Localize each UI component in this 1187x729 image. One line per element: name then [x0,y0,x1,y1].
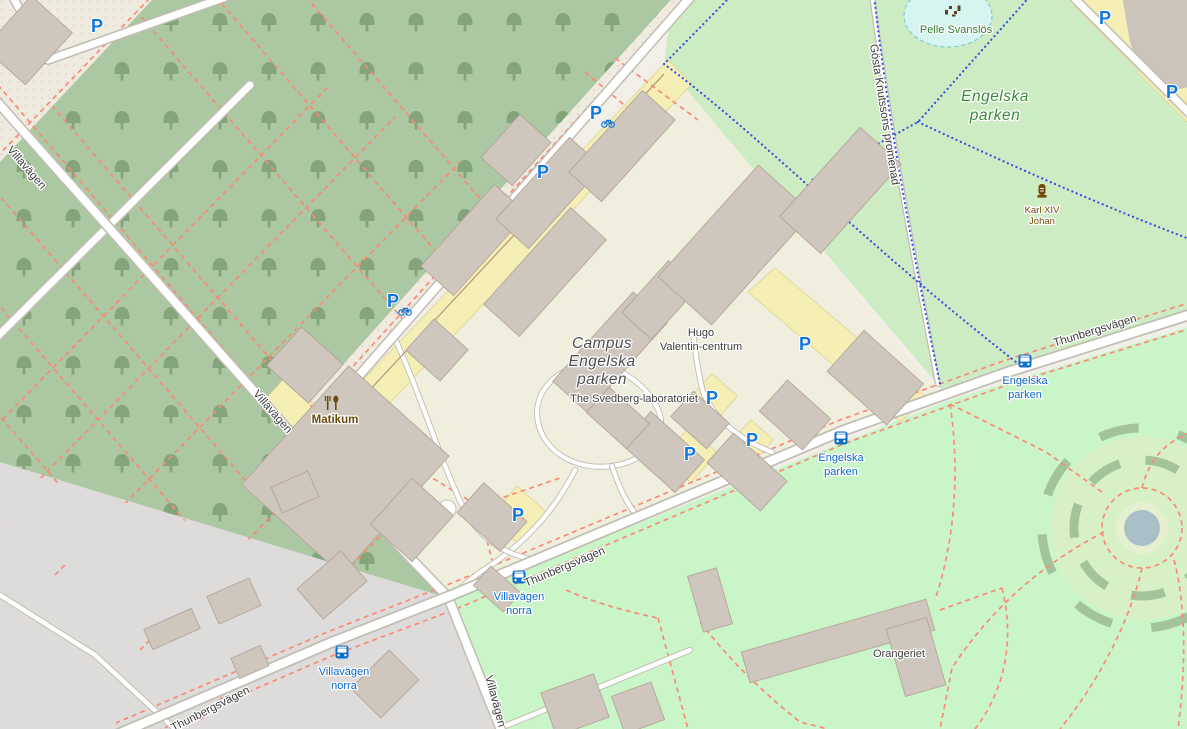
map-svg[interactable]: P P P P P P P P P P P [0,0,1187,729]
bus-stop-label: Villavägen [319,666,370,678]
bus-stop-icon [1019,355,1032,368]
memorial-icon [1038,184,1047,198]
poi-label-orangeriet: Orangeriet [873,648,925,660]
area-label-campus: Campus [572,335,632,352]
parking-icon: P [91,16,103,36]
poi-label-hugo-valentin: Hugo [688,327,714,339]
parking-icon: P [706,388,718,408]
parking-icon: P [684,444,696,464]
parking-icon: P [512,505,524,525]
bus-stop-label: Villavägen [494,591,545,603]
poi-label-hugo-valentin: Valentin-centrum [660,341,742,353]
area-label-engelska-parken: parken [969,107,1020,124]
bicycle-parking-icon: P [387,291,399,311]
bus-stop-label: Engelska [818,452,864,464]
poi-label-karl-xiv: Johan [1029,216,1055,227]
parking-icon: P [799,334,811,354]
poi-label-matikum: Matikum [312,414,359,426]
poi-label-pelle-svanslos: Pelle Svanslös [920,24,993,36]
parking-icon: P [1166,82,1178,102]
area-label-campus: parken [576,371,627,388]
parking-icon: P [537,162,549,182]
bus-stop-label: norra [506,605,533,617]
bus-stop-icon [336,646,349,659]
bus-stop-label: parken [1008,389,1042,401]
area-label-campus: Engelska [569,353,636,370]
fountain-water [1124,510,1160,546]
bicycle-parking-icon: P [590,103,602,123]
area-label-engelska-parken: Engelska [961,88,1029,105]
bus-stop-label: parken [824,466,858,478]
bus-stop-icon [835,432,848,445]
poi-label-svedberg: The Svedberg-laboratoriet [570,393,698,405]
poi-label-karl-xiv: Karl XIV [1025,205,1061,216]
bus-stop-label: Engelska [1002,375,1048,387]
map-canvas[interactable]: P P P P P P P P P P P [0,0,1187,729]
bus-stop-label: norra [331,680,358,692]
parking-icon: P [746,430,758,450]
parking-icon: P [1099,8,1111,28]
